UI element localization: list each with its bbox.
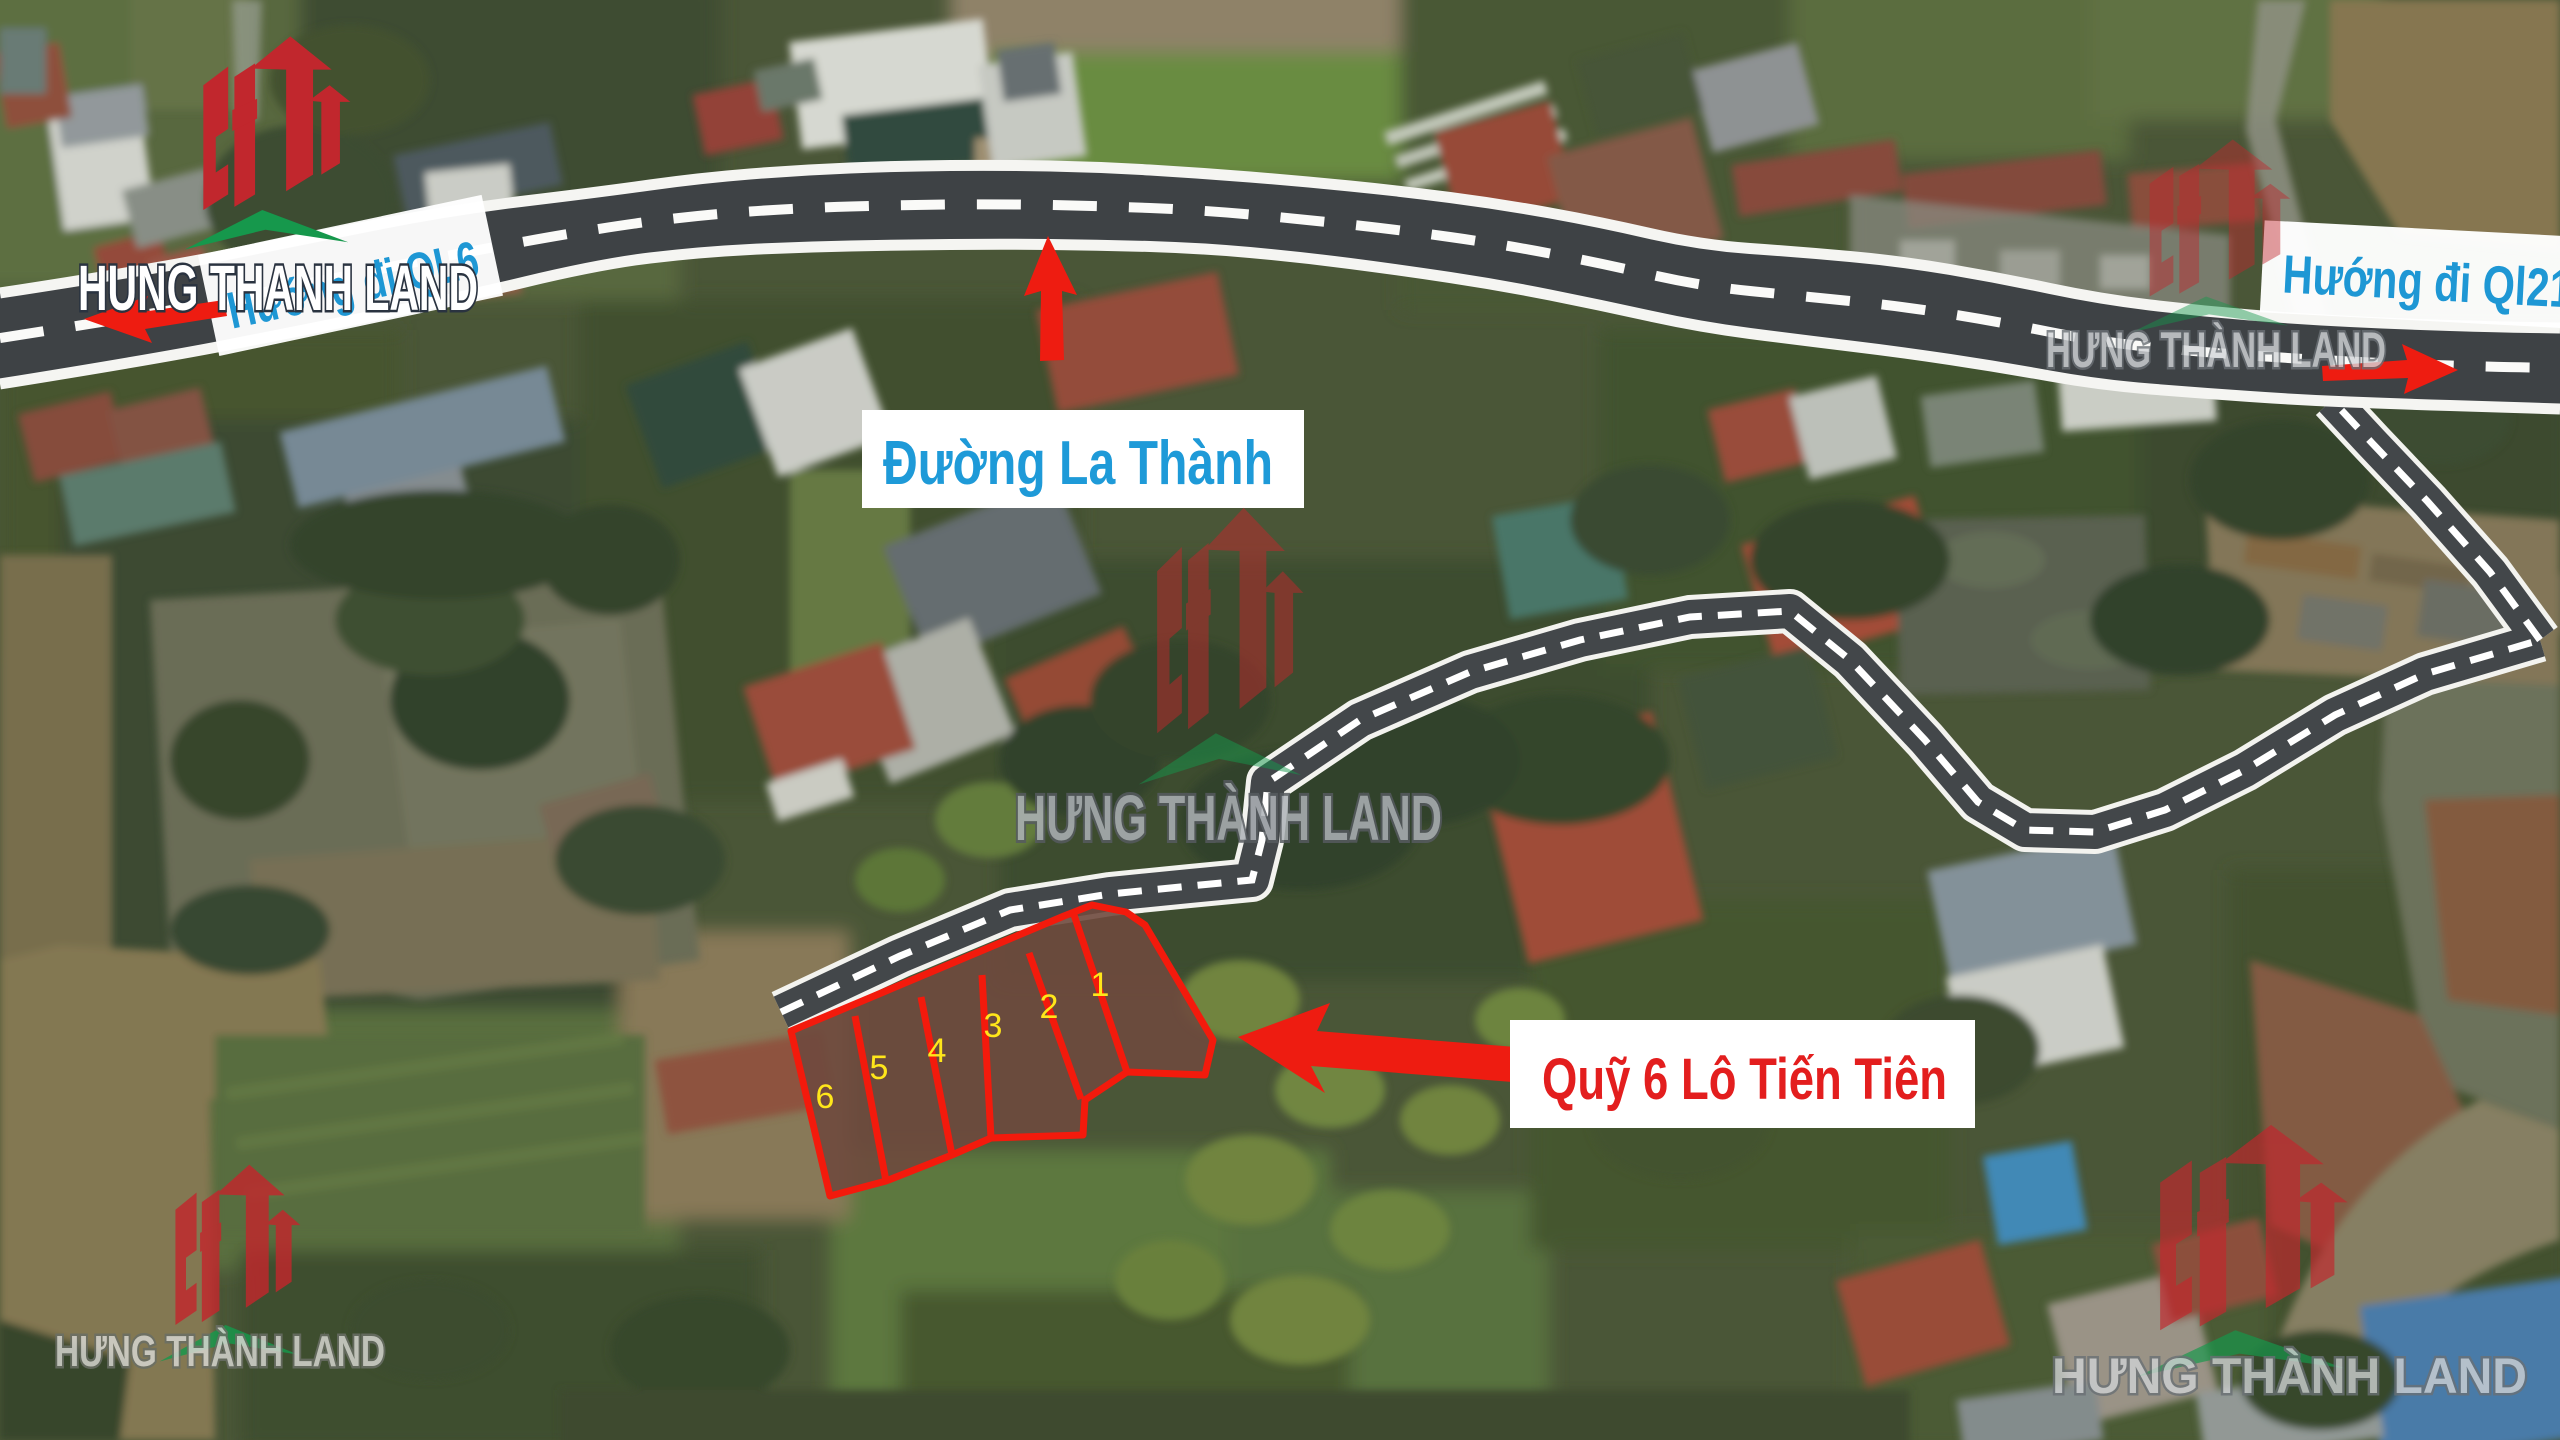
svg-text:5: 5 [870,1049,889,1087]
svg-text:HƯNG THÀNH LAND: HƯNG THÀNH LAND [1015,782,1442,854]
svg-text:HUNG THANH LAND: HUNG THANH LAND [78,252,478,324]
svg-text:4: 4 [928,1032,947,1070]
svg-text:6: 6 [816,1078,835,1116]
svg-text:HƯNG THÀNH LAND: HƯNG THÀNH LAND [2052,1348,2527,1404]
svg-text:2: 2 [1040,988,1059,1026]
svg-text:HƯNG THÀNH LAND: HƯNG THÀNH LAND [55,1326,385,1376]
svg-text:HƯNG THÀNH LAND: HƯNG THÀNH LAND [2046,322,2386,378]
svg-text:3: 3 [984,1007,1003,1045]
svg-text:1: 1 [1091,966,1110,1004]
svg-text:Quỹ 6 Lô Tiến Tiên: Quỹ 6 Lô Tiến Tiên [1542,1047,1947,1112]
svg-text:Đường La Thành: Đường La Thành [883,429,1273,498]
